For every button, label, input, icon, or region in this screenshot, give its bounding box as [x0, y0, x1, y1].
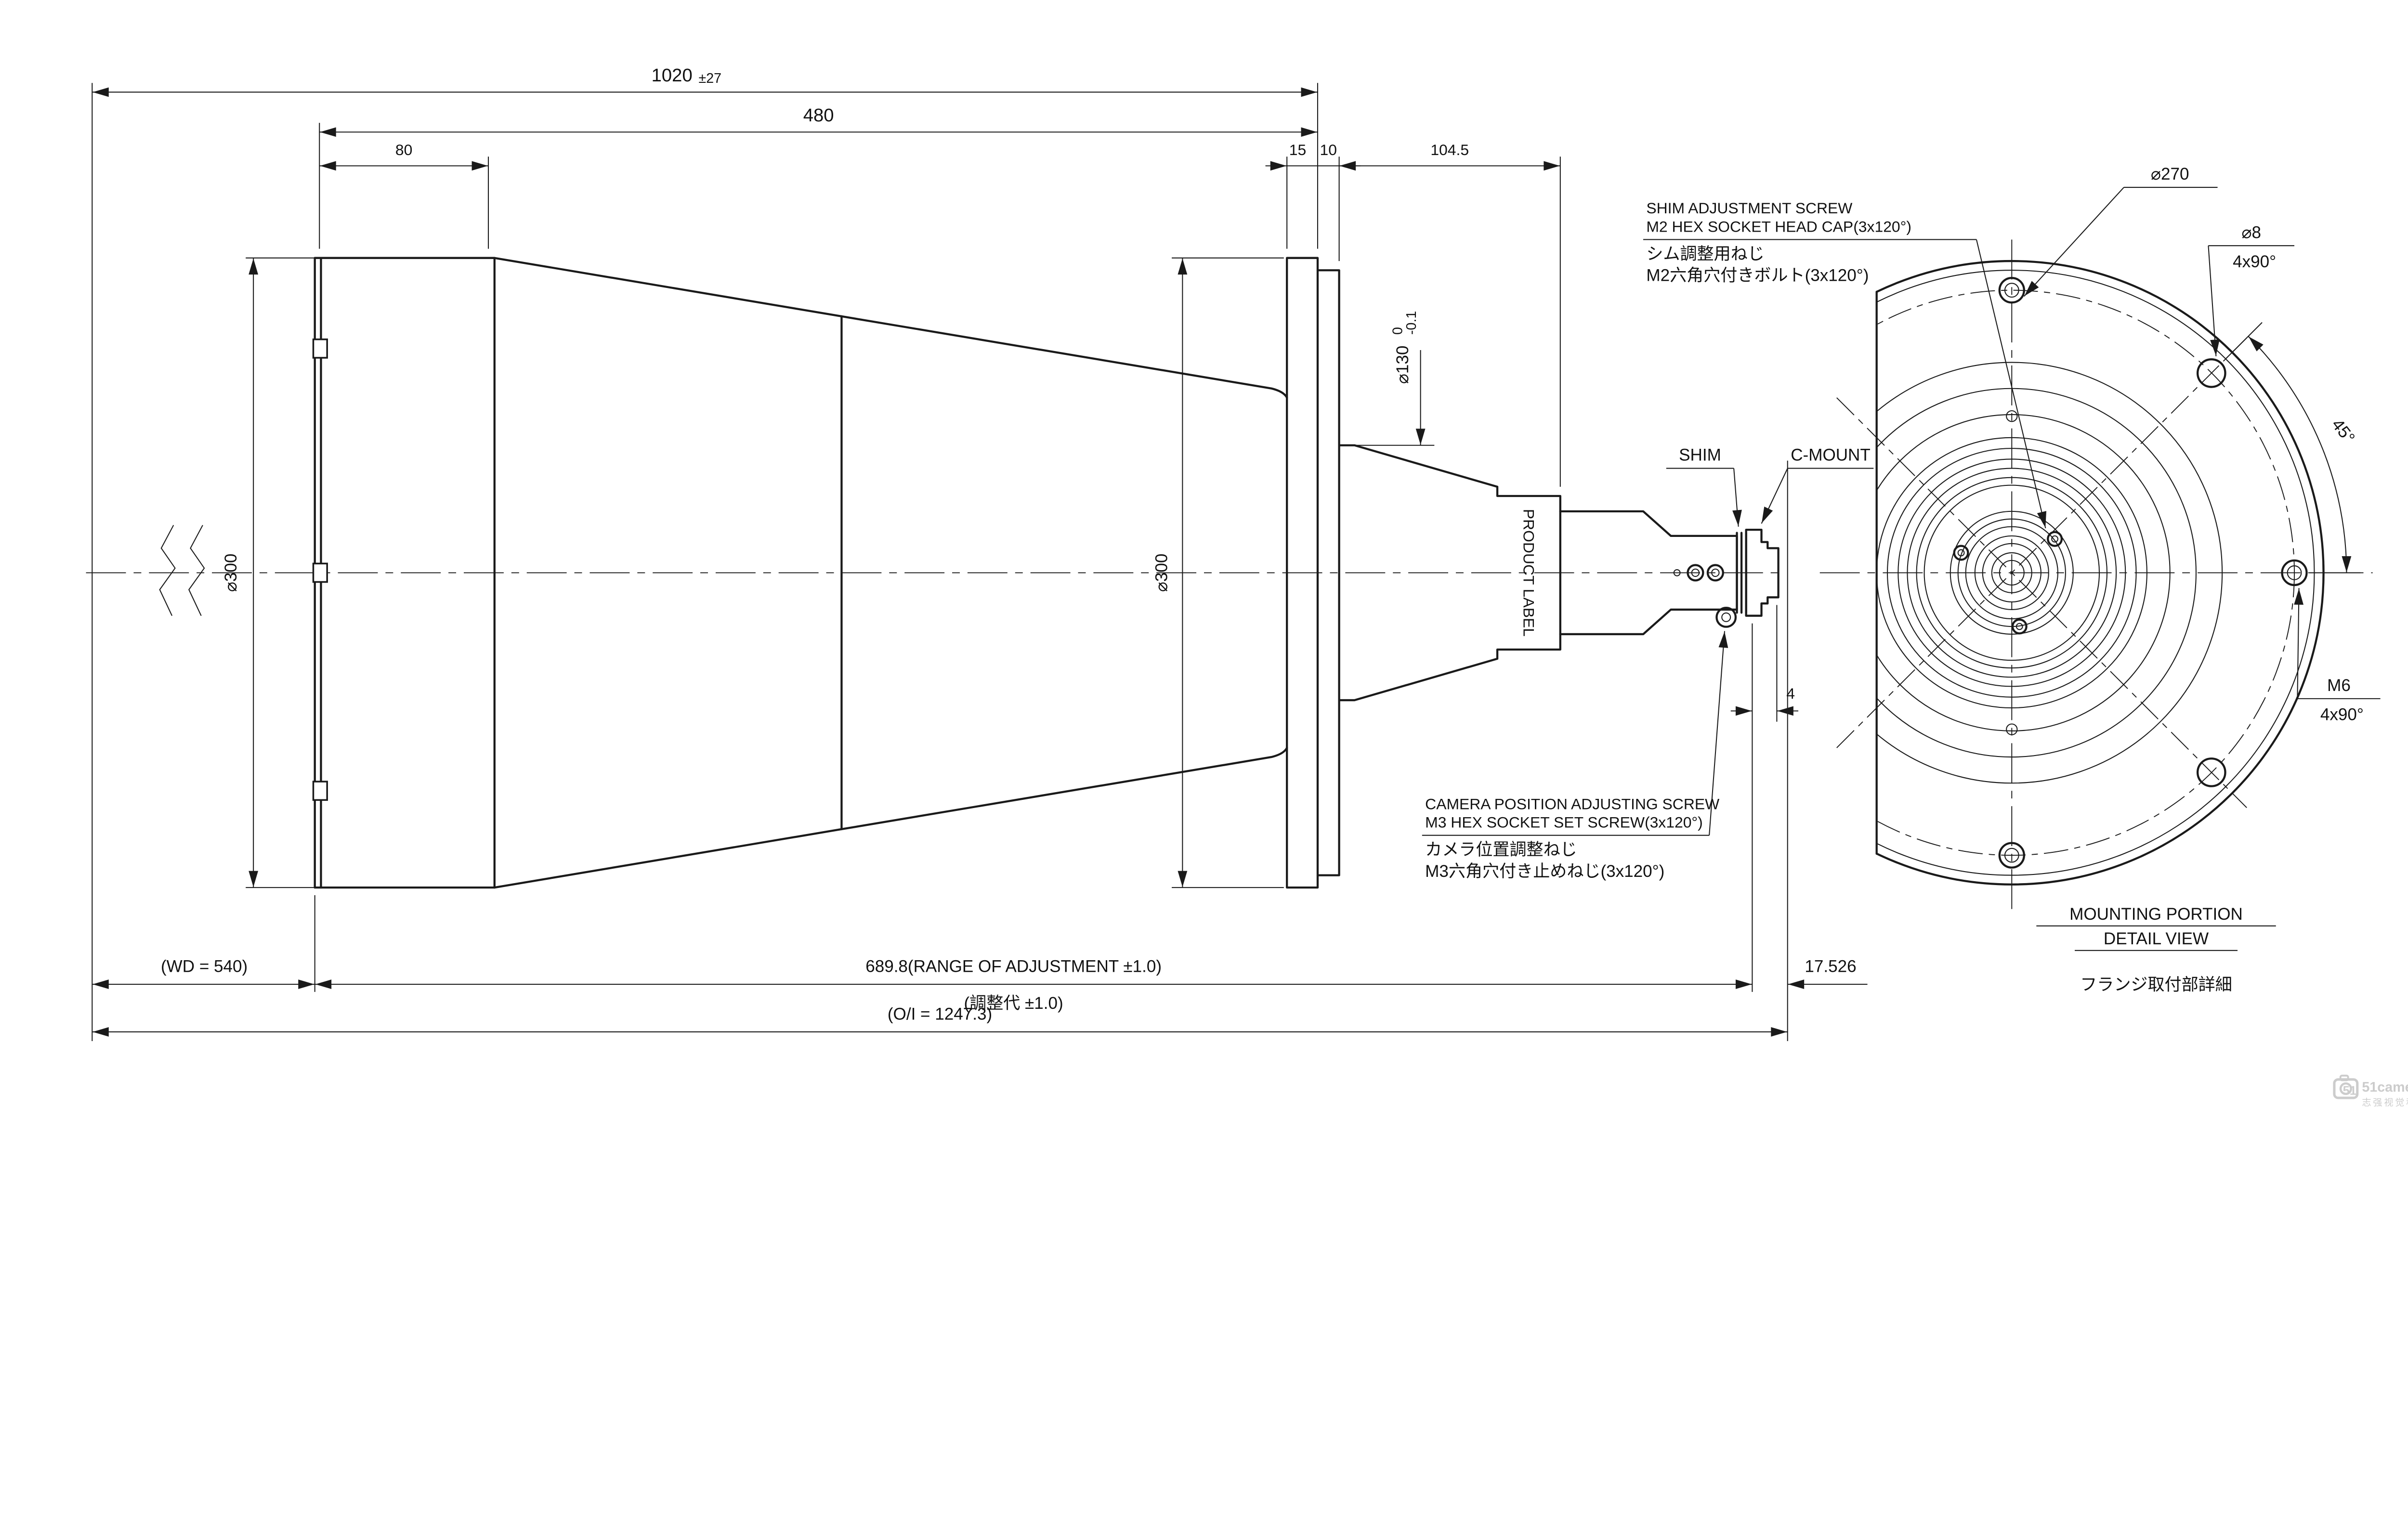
break-zigzag-left — [160, 525, 175, 616]
svg-text:M2六角穴付きボルト(3x120°): M2六角穴付きボルト(3x120°) — [1646, 266, 1869, 285]
svg-text:CAMERA POSITION ADJUSTING SCRE: CAMERA POSITION ADJUSTING SCREW — [1425, 795, 1719, 812]
dim-wd-text: (WD = 540) — [161, 957, 248, 976]
front-tab-top — [314, 339, 327, 358]
svg-text:4x90°: 4x90° — [2320, 705, 2364, 724]
svg-text:カメラ位置調整ねじ: カメラ位置調整ねじ — [1425, 840, 1577, 859]
side-view: PRODUCT LABEL 1020±27 480 80 15 10 — [86, 65, 1874, 1041]
svg-text:M3六角穴付き止めねじ(3x120°): M3六角穴付き止めねじ(3x120°) — [1425, 862, 1664, 881]
dia8-callout: ⌀8 4x90° — [2208, 223, 2294, 356]
m2-screw-1 — [2048, 532, 2062, 546]
c-mount-leader — [1762, 469, 1788, 524]
dim-45deg-text: 45° — [2328, 415, 2358, 447]
dim-80-text: 80 — [395, 141, 412, 158]
dim-range-text: 689.8(RANGE OF ADJUSTMENT ±1.0) — [865, 957, 1162, 976]
svg-text:M3 HEX SOCKET SET SCREW(3x120°: M3 HEX SOCKET SET SCREW(3x120°) — [1425, 814, 1703, 831]
svg-text:DETAIL VIEW: DETAIL VIEW — [2104, 929, 2209, 948]
svg-text:SHIM ADJUSTMENT SCREW: SHIM ADJUSTMENT SCREW — [1646, 199, 1852, 217]
lens-technical-drawing: PRODUCT LABEL 1020±27 480 80 15 10 — [0, 0, 2408, 1109]
watermark-brand: 51camera — [2362, 1080, 2408, 1095]
dim-dia300-flange-text: ⌀300 — [1152, 554, 1171, 592]
break-zigzag-right — [189, 525, 204, 616]
mounting-detail-view: 45° ⌀270 ⌀8 4x90° M6 4x90° MOUNTING PORT… — [1700, 165, 2381, 994]
dim-dia300-front-text: ⌀300 — [222, 554, 240, 592]
dim-15-text: 15 — [1289, 141, 1306, 158]
dim-oi-text: (O/I = 1247.3) — [888, 1004, 992, 1023]
dia270-callout: ⌀270 — [2024, 165, 2218, 296]
callouts: SHIM C-MOUNT — [1666, 446, 1873, 527]
m6-callout: M6 4x90° — [2297, 588, 2380, 724]
svg-text:⌀1300-0.1: ⌀1300-0.1 — [1390, 311, 1419, 384]
dim-104-text: 104.5 — [1430, 141, 1469, 158]
annotation-blocks: SHIM ADJUSTMENT SCREW M2 HEX SOCKET HEAD… — [1422, 199, 2046, 881]
c-mount-label: C-MOUNT — [1791, 446, 1871, 465]
camera-icon: 51 — [2334, 1076, 2357, 1098]
watermark-brand-jp: 志强视觉科技 — [2362, 1097, 2408, 1108]
dim-ffd-text: 17.526 — [1805, 957, 1856, 976]
svg-text:シム調整用ねじ: シム調整用ねじ — [1646, 245, 1764, 263]
dim-10-text: 10 — [1320, 141, 1337, 158]
svg-text:⌀270: ⌀270 — [2151, 165, 2189, 183]
m6-leader — [2297, 588, 2299, 699]
front-tab-mid — [314, 563, 327, 582]
svg-text:M6: M6 — [2327, 676, 2351, 695]
camera-position-note: CAMERA POSITION ADJUSTING SCREW M3 HEX S… — [1422, 631, 1725, 881]
watermark-icon-text: 51 — [2343, 1084, 2356, 1098]
svg-text:M2 HEX SOCKET HEAD CAP(3x120°): M2 HEX SOCKET HEAD CAP(3x120°) — [1646, 218, 1911, 235]
dim-45deg: 45° — [2225, 323, 2361, 573]
technical-drawing-page: PRODUCT LABEL 1020±27 480 80 15 10 — [0, 0, 2408, 1109]
svg-text:⌀8: ⌀8 — [2241, 223, 2261, 242]
detail-view-title-jp: フランジ取付部詳細 — [2080, 976, 2232, 994]
dia8-leader — [2208, 246, 2216, 356]
svg-text:MOUNTING PORTION: MOUNTING PORTION — [2069, 905, 2243, 924]
front-tab-bottom — [314, 782, 327, 800]
m2-screw-2 — [1954, 546, 1968, 560]
dim-4-text: 4 — [1786, 685, 1795, 702]
product-label-text: PRODUCT LABEL — [1520, 509, 1537, 637]
detail-centerline-45 — [1837, 338, 2247, 748]
svg-text:4x90°: 4x90° — [2233, 252, 2276, 271]
shim-label: SHIM — [1679, 446, 1721, 465]
detail-centerline-315 — [1837, 398, 2247, 808]
dim-480-text: 480 — [803, 105, 834, 126]
dim-dia130-text: ⌀1300-0.1 — [1390, 311, 1419, 384]
shim-leader — [1734, 469, 1739, 527]
watermark: 51 51camera 志强视觉科技 — [2334, 1076, 2408, 1108]
dim-1020-text: 1020±27 — [652, 65, 722, 86]
dia270-leader — [2024, 187, 2124, 296]
detail-view-title: MOUNTING PORTION DETAIL VIEW フランジ取付部詳細 — [2036, 905, 2276, 994]
